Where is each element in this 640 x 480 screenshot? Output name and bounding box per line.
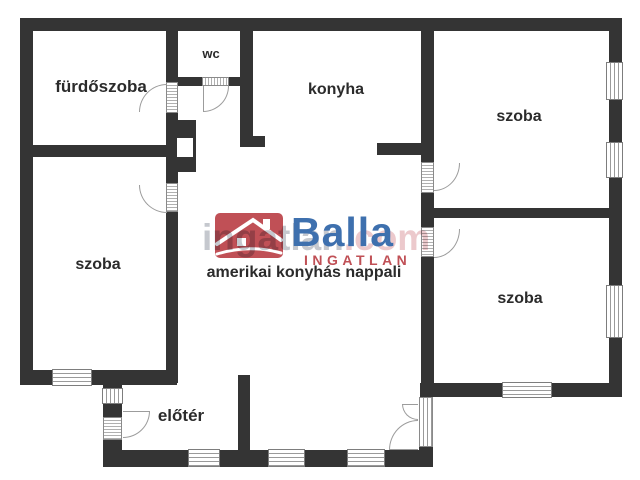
room-label-room-left: szoba [38, 256, 158, 274]
window-symbol [188, 449, 220, 467]
floor-plan: fürdőszoba wc konyha szoba szoba szoba a… [0, 0, 640, 480]
door-swing-arc [434, 229, 460, 258]
room-label-room-top-right: szoba [459, 108, 579, 126]
wall-left [20, 18, 33, 385]
door-symbol-entrance [103, 417, 122, 440]
wall-room-left-bottom [20, 370, 177, 385]
window-symbol [268, 449, 305, 467]
door-swing-arc [434, 163, 460, 191]
brand-name: Balla [291, 209, 394, 256]
window-symbol [347, 449, 385, 467]
window-symbol [606, 142, 623, 178]
door-swing-arc [139, 185, 167, 213]
door-swing-arc [389, 420, 418, 450]
room-label-room-bottom-right: szoba [460, 290, 580, 308]
door-symbol-room-left [166, 183, 178, 212]
wall-top [20, 18, 622, 31]
room-label-hall: előtér [121, 406, 241, 426]
wall-right-column [421, 31, 434, 383]
door-symbol-terrace-double [419, 397, 433, 447]
room-label-bathroom: fürdőszoba [31, 77, 171, 97]
window-symbol [102, 388, 123, 404]
wall-bath-room-divider [32, 145, 168, 157]
room-label-living-room: amerikai konyhás nappali [179, 264, 429, 282]
door-swing-arc [402, 404, 418, 420]
wall-rooms-right-divider [421, 208, 609, 218]
window-symbol [606, 62, 623, 100]
window-symbol [502, 382, 552, 398]
wall-wc-right-foot [240, 136, 265, 147]
door-symbol-wc [202, 77, 229, 86]
door-swing-arc [203, 86, 229, 112]
room-label-kitchen: konyha [276, 81, 396, 99]
chimney-shaft [177, 138, 193, 157]
wall-kitchen-stub [377, 143, 421, 155]
room-label-wc: wc [186, 46, 236, 61]
window-symbol [606, 285, 623, 338]
window-symbol [52, 369, 92, 386]
wall-wc-right [240, 18, 253, 147]
door-symbol-room-top [421, 162, 434, 193]
